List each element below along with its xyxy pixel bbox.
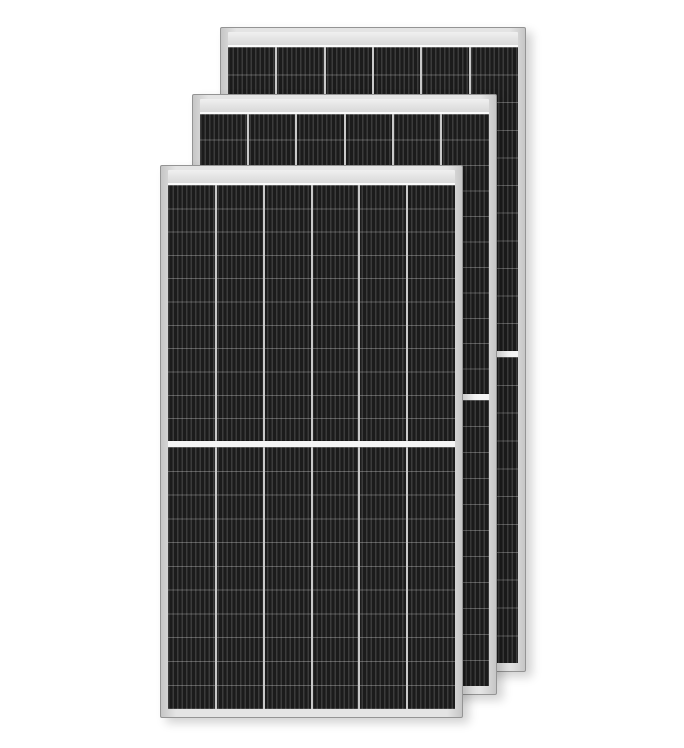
panel-frame-top-bar [168,170,455,183]
panel-cell-grid [168,185,455,709]
panel-frame-top-bar [228,32,518,45]
panel-frame-top-bar [200,99,489,112]
solar-panel-product-image [0,0,684,748]
panel-center-gap [168,441,455,447]
front-panel [160,165,463,718]
